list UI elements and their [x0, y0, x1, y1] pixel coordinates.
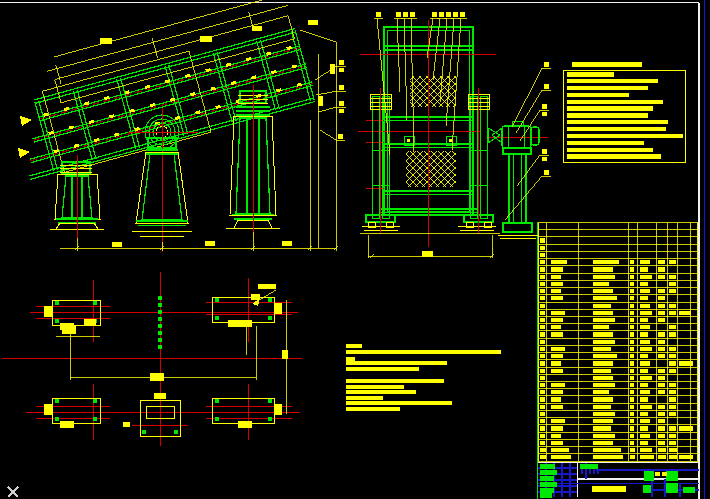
stamp-bar: [580, 464, 598, 469]
title-block: [538, 463, 699, 499]
notes-box-text-lines: [567, 72, 683, 159]
balloon-callouts: [315, 12, 551, 220]
drive-motor-assembly: [488, 121, 539, 239]
parts-table: [538, 223, 697, 462]
motor-fan-cover: [531, 127, 539, 145]
anchor-pad-bottom-left: [44, 398, 100, 428]
front-view-dimensions: [360, 233, 500, 258]
hopper-outline: [42, 51, 211, 172]
notes-box-title-bar: [572, 62, 642, 67]
technical-notes-box: [563, 62, 685, 162]
screen-mesh-lower: [406, 151, 456, 187]
feed-end-arrow: [20, 116, 32, 126]
side-view: [1, 0, 338, 252]
crosshair-cursor[interactable]: [8, 487, 18, 497]
notes-text-block: [346, 344, 501, 411]
drawing-number-blob: [592, 486, 626, 492]
feed-end-arrow: [18, 148, 30, 158]
support-leg-right: [226, 85, 280, 236]
cad-viewport[interactable]: [0, 0, 710, 499]
cad-application-window: [0, 0, 710, 499]
anchor-pad-bottom-right: [212, 398, 282, 428]
plan-view: [2, 272, 302, 446]
